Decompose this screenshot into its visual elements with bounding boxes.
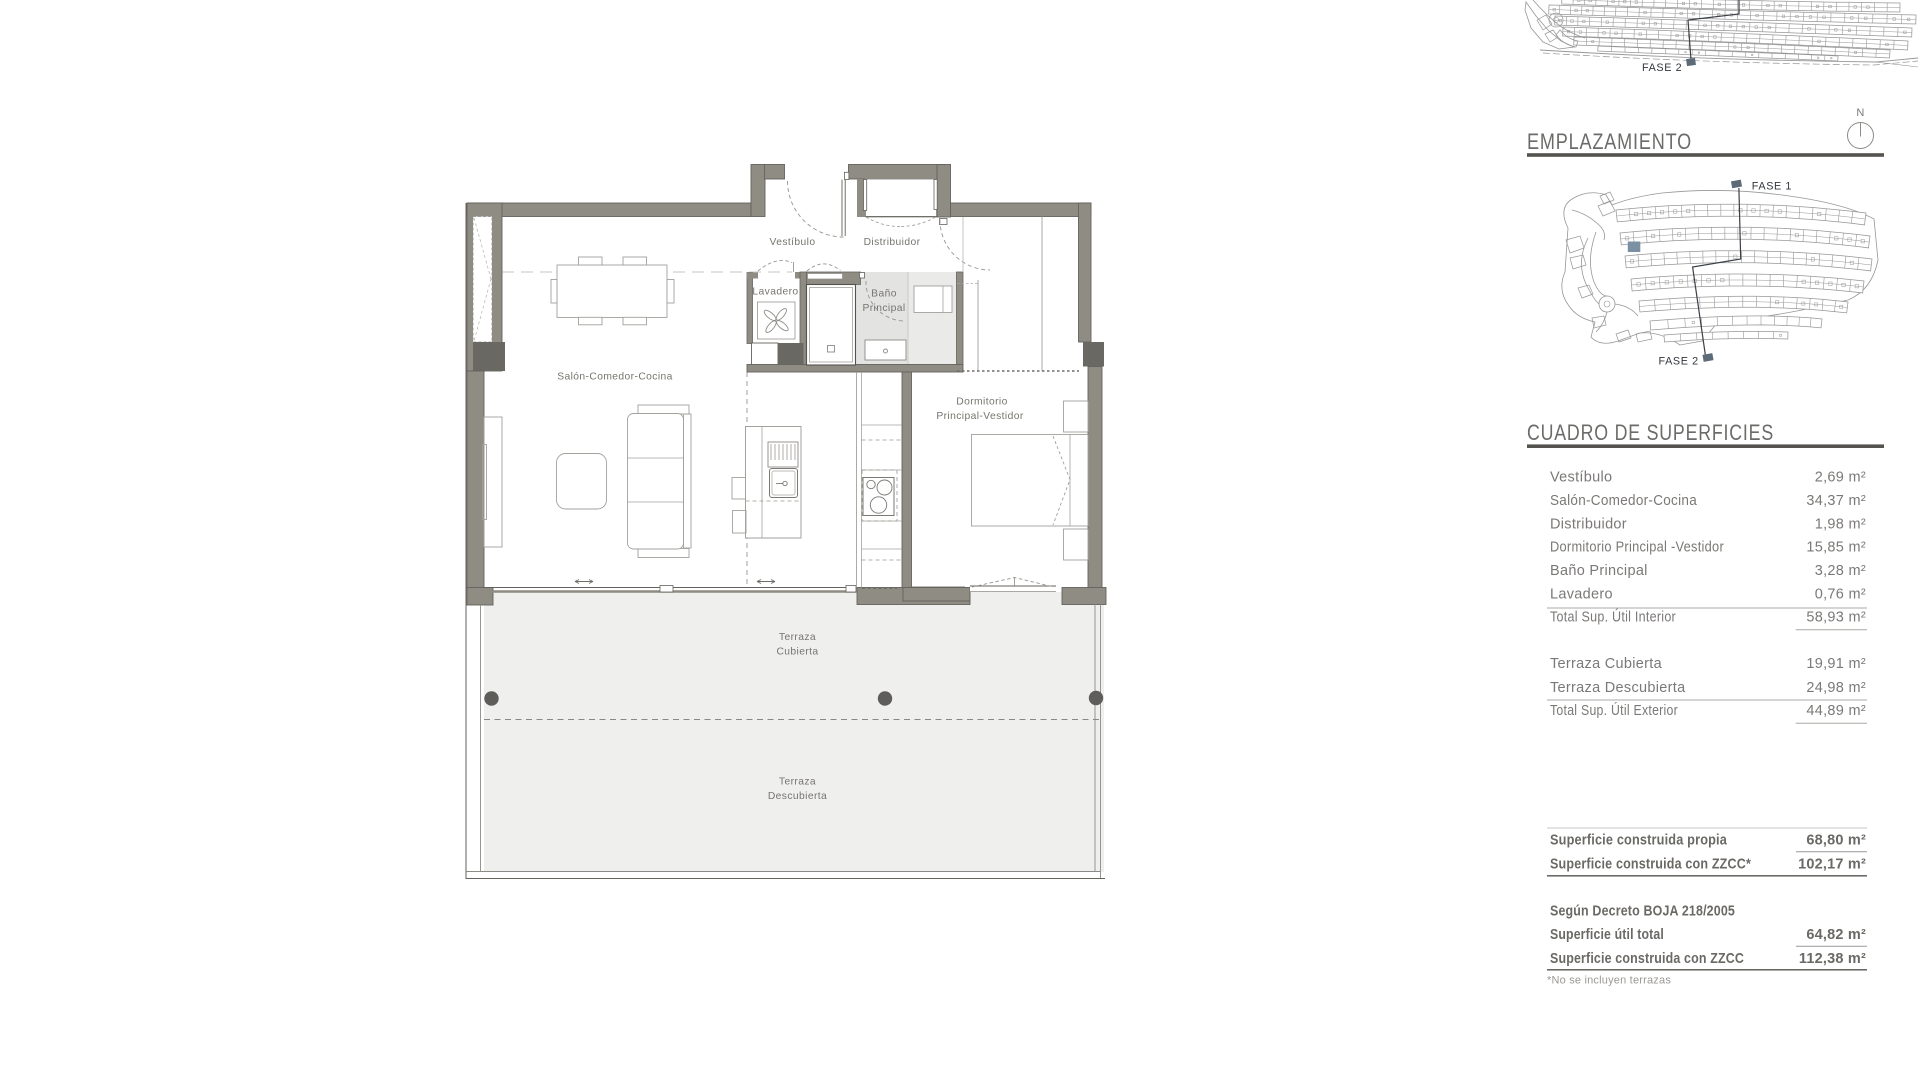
svg-text:1,98 m²: 1,98 m² (1815, 516, 1866, 532)
svg-text:Principal: Principal (862, 303, 905, 314)
svg-text:34,37 m²: 34,37 m² (1806, 493, 1866, 509)
svg-text:Distribuidor: Distribuidor (1550, 516, 1627, 532)
svg-text:Terraza: Terraza (779, 777, 816, 788)
svg-text:Lavadero: Lavadero (1550, 586, 1613, 602)
svg-text:Cubierta: Cubierta (776, 647, 818, 658)
svg-text:Terraza: Terraza (779, 632, 816, 643)
svg-text:68,80 m²: 68,80 m² (1806, 833, 1866, 849)
svg-text:3,28 m²: 3,28 m² (1815, 563, 1866, 579)
svg-text:Descubierta: Descubierta (768, 791, 827, 802)
svg-text:15,85 m²: 15,85 m² (1806, 540, 1866, 556)
svg-text:*No se incluyen terrazas: *No se incluyen terrazas (1547, 975, 1671, 987)
svg-text:2,69 m²: 2,69 m² (1815, 470, 1866, 486)
svg-text:CUADRO DE SUPERFICIES: CUADRO DE SUPERFICIES (1527, 420, 1774, 445)
svg-text:Total Sup. Útil Interior: Total Sup. Útil Interior (1550, 609, 1676, 626)
svg-text:24,98 m²: 24,98 m² (1806, 680, 1866, 696)
svg-text:Baño: Baño (871, 289, 897, 300)
svg-text:Superficie útil total: Superficie útil total (1550, 926, 1664, 943)
svg-text:EMPLAZAMIENTO: EMPLAZAMIENTO (1527, 129, 1692, 154)
svg-text:Dormitorio Principal -Vestidor: Dormitorio Principal -Vestidor (1550, 540, 1724, 556)
svg-text:Salón-Comedor-Cocina: Salón-Comedor-Cocina (557, 372, 673, 383)
svg-text:58,93 m²: 58,93 m² (1806, 610, 1866, 626)
svg-text:Dormitorio: Dormitorio (956, 397, 1008, 408)
svg-text:FASE 2: FASE 2 (1642, 62, 1682, 74)
svg-text:19,91 m²: 19,91 m² (1806, 656, 1866, 672)
svg-text:Terraza Cubierta: Terraza Cubierta (1550, 656, 1663, 672)
svg-text:64,82 m²: 64,82 m² (1806, 927, 1866, 943)
svg-text:Salón-Comedor-Cocina: Salón-Comedor-Cocina (1550, 493, 1698, 509)
svg-text:Superficie construida propia: Superficie construida propia (1550, 832, 1727, 849)
svg-text:112,38 m²: 112,38 m² (1799, 951, 1866, 967)
svg-text:102,17 m²: 102,17 m² (1798, 856, 1866, 872)
svg-text:Superficie construida con ZZCC: Superficie construida con ZZCC* (1550, 855, 1751, 872)
svg-text:44,89 m²: 44,89 m² (1806, 703, 1866, 719)
svg-text:Lavadero: Lavadero (752, 287, 798, 298)
svg-text:Según Decreto BOJA 218/2005: Según Decreto BOJA 218/2005 (1550, 903, 1735, 920)
svg-text:Vestíbulo: Vestíbulo (770, 237, 816, 248)
svg-text:Terraza Descubierta: Terraza Descubierta (1550, 680, 1686, 696)
svg-text:Superficie construida con ZZCC: Superficie construida con ZZCC (1550, 950, 1744, 967)
svg-text:FASE 1: FASE 1 (1752, 181, 1792, 193)
svg-text:Baño Principal: Baño Principal (1550, 563, 1648, 579)
svg-text:Principal-Vestidor: Principal-Vestidor (936, 411, 1023, 422)
svg-text:Distribuidor: Distribuidor (864, 237, 921, 248)
svg-text:Total Sup. Útil Exterior: Total Sup. Útil Exterior (1550, 702, 1678, 719)
svg-text:N: N (1856, 107, 1864, 119)
svg-text:FASE 2: FASE 2 (1659, 356, 1699, 368)
svg-text:Vestíbulo: Vestíbulo (1550, 470, 1612, 486)
svg-text:0,76 m²: 0,76 m² (1815, 586, 1866, 602)
